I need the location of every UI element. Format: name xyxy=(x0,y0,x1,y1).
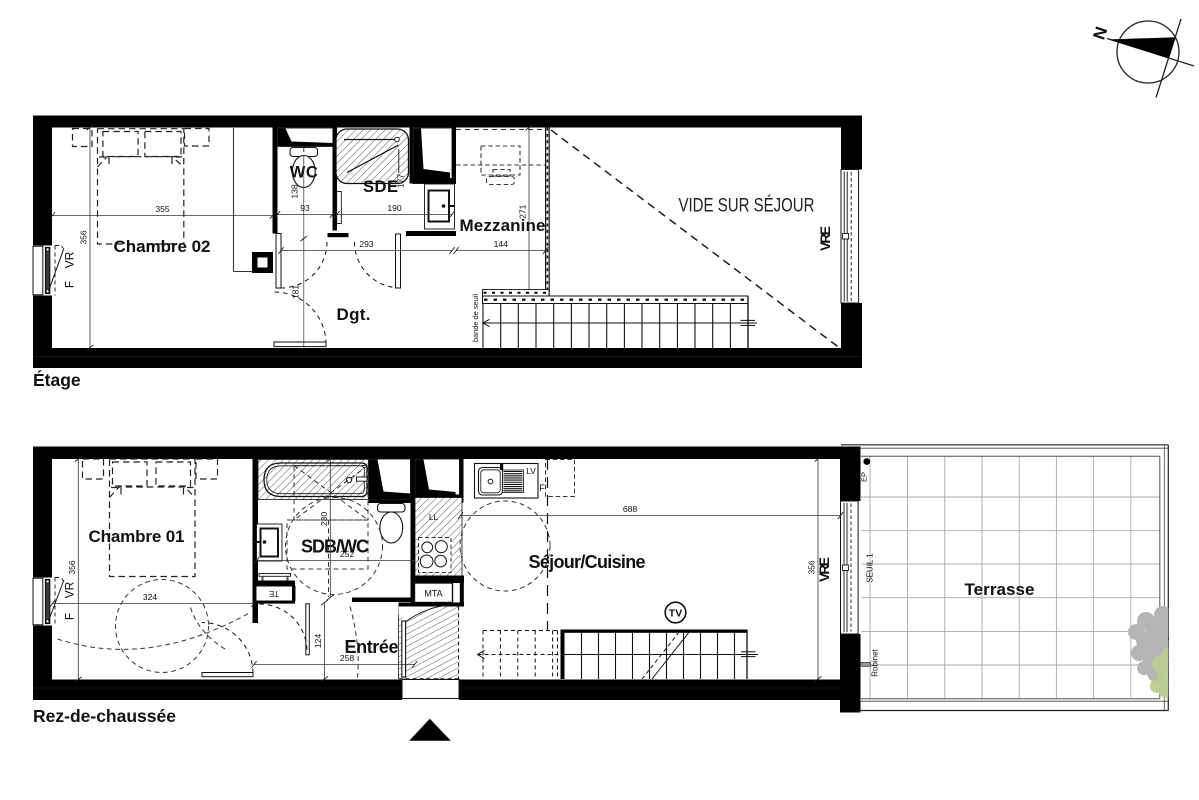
svg-text:181: 181 xyxy=(291,285,301,300)
svg-text:Étage: Étage xyxy=(33,369,81,390)
svg-text:93: 93 xyxy=(300,203,310,213)
svg-text:VIDE SUR SÉJOUR: VIDE SUR SÉJOUR xyxy=(679,196,815,217)
svg-text:SDE: SDE xyxy=(363,178,398,196)
svg-text:MTA: MTA xyxy=(424,589,442,599)
svg-text:230: 230 xyxy=(319,512,329,527)
svg-text:F: F xyxy=(539,483,545,493)
svg-text:SEUIL 1: SEUIL 1 xyxy=(866,553,875,583)
svg-text:Rez-de-chaussée: Rez-de-chaussée xyxy=(33,706,176,726)
svg-text:F: F xyxy=(63,613,77,620)
svg-text:324: 324 xyxy=(143,592,158,602)
svg-text:TE: TE xyxy=(269,589,279,598)
svg-text:355: 355 xyxy=(155,204,170,214)
svg-text:271: 271 xyxy=(518,204,528,219)
svg-text:252: 252 xyxy=(340,549,355,559)
svg-text:bande de seuil: bande de seuil xyxy=(471,294,480,342)
svg-text:VR: VR xyxy=(63,251,77,268)
svg-text:138: 138 xyxy=(290,184,300,199)
svg-text:688: 688 xyxy=(623,504,638,514)
svg-text:Séjour/Cuisine: Séjour/Cuisine xyxy=(529,552,646,572)
svg-text:TV: TV xyxy=(669,608,682,620)
svg-text:177: 177 xyxy=(396,174,406,189)
svg-text:258: 258 xyxy=(340,653,355,663)
svg-text:VR: VR xyxy=(63,581,77,598)
svg-text:Mezzanine: Mezzanine xyxy=(460,216,546,235)
svg-text:Robinet: Robinet xyxy=(871,648,880,676)
svg-text:356: 356 xyxy=(67,560,77,575)
svg-text:Dgt.: Dgt. xyxy=(337,305,371,324)
svg-text:F: F xyxy=(63,281,77,288)
svg-text:LL: LL xyxy=(429,512,439,522)
svg-text:356: 356 xyxy=(807,560,817,575)
svg-text:VRE: VRE xyxy=(817,226,833,251)
svg-text:VRE: VRE xyxy=(816,557,832,582)
svg-text:Chambre 02: Chambre 02 xyxy=(114,237,211,256)
svg-text:Terrasse: Terrasse xyxy=(965,580,1035,599)
svg-text:190: 190 xyxy=(387,203,402,213)
svg-text:EP: EP xyxy=(860,472,869,482)
svg-text:356: 356 xyxy=(79,230,89,245)
svg-text:144: 144 xyxy=(494,239,509,249)
svg-text:124: 124 xyxy=(313,634,323,649)
svg-text:LV: LV xyxy=(526,466,536,476)
svg-text:293: 293 xyxy=(359,239,374,249)
svg-text:Chambre 01: Chambre 01 xyxy=(89,527,185,546)
svg-text:SDB/WC: SDB/WC xyxy=(301,537,369,557)
